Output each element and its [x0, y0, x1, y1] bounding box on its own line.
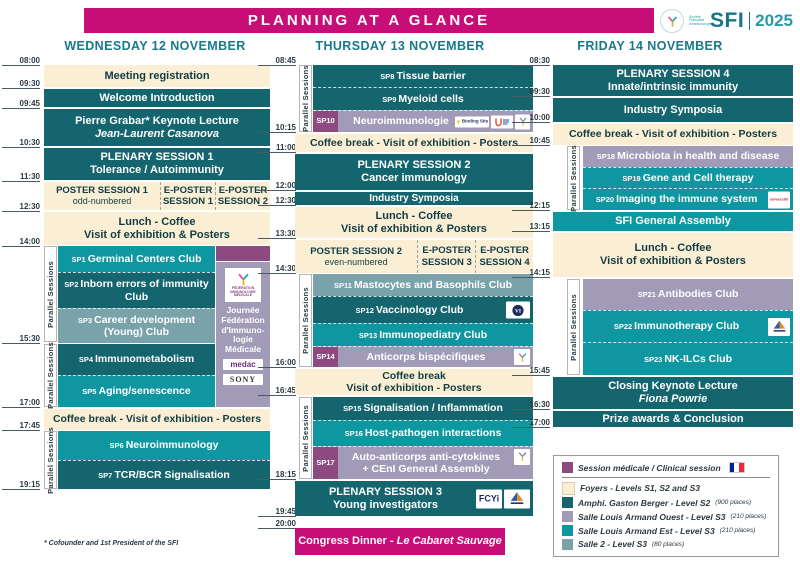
- fim-logo: FÉDÉRATION IMMUNOLOGIE MÉDICALE: [225, 268, 261, 302]
- dinner-venue: Le Cabaret Sauvage: [397, 535, 502, 547]
- session-sfi-general-assembly: SFI General Assembly: [553, 212, 793, 231]
- legend-est: Salle Louis Armand Est - Level S3 (210 p…: [562, 525, 770, 536]
- session-sp9: SP9Myeloid cells: [313, 87, 533, 110]
- session-sp3: SP3Career development (Young) Club: [58, 308, 215, 343]
- keynote-speaker: Jean-Laurent Casanova: [47, 128, 267, 141]
- legend-ouest: Salle Louis Armand Ouest - Level S3 (210…: [562, 511, 770, 522]
- time-label: 11:00: [258, 143, 296, 153]
- amphi-swatch: [562, 497, 573, 508]
- session-keynote-lecture: Pierre Grabar* Keynote Lecture Jean-Laur…: [44, 109, 270, 146]
- time-label: 17:00: [512, 418, 550, 428]
- session-sp17: SP17 Auto-anticorps anti-cytokines + CEn…: [313, 446, 533, 479]
- session-sp13: SP13Immunopediatry Club: [313, 323, 533, 346]
- planning-page: PLANNING AT A GLANCE Société Française d…: [0, 0, 800, 566]
- session-coffee-fri-am: Coffee break - Visit of exhibition - Pos…: [553, 124, 793, 145]
- time-label: 19:15: [2, 480, 40, 490]
- e-poster-session-3: E-POSTER SESSION 3: [417, 240, 475, 273]
- triangle-partner-logo: [768, 318, 790, 336]
- time-label: 15:30: [2, 334, 40, 344]
- fim-caption: Journée Fédération d'Immuno­logie Médica…: [216, 306, 270, 355]
- time-label: 11:30: [2, 172, 40, 182]
- time-label: 14:00: [2, 237, 40, 247]
- time-label: 14:30: [258, 264, 296, 274]
- legend-salle2: Salle 2 - Level S3 (80 places): [562, 539, 770, 550]
- fim-mini-logo: [514, 449, 530, 465]
- sfi-year: 2025: [755, 11, 793, 31]
- session-plenary-2: PLENARY SESSION 2 Cancer immunology: [295, 154, 533, 190]
- session-sp1: SP1Germinal Centers Club: [58, 246, 215, 272]
- session-coffee-thu-am: Coffee break - Visit of exhibition - Pos…: [295, 134, 533, 152]
- parallel-sessions-tab: Parallel Sessions: [567, 146, 580, 210]
- time-label: 08:00: [2, 56, 40, 66]
- french-flag-icon: [729, 462, 745, 473]
- time-label: 18:15: [258, 470, 296, 480]
- session-sp5: SP5Aging/senescence: [58, 375, 215, 407]
- session-sp18: SP18Microbiota in health and disease: [583, 146, 793, 167]
- poster-session-2: POSTER SESSION 2 even-numbered: [295, 240, 417, 273]
- est-swatch: [562, 525, 573, 536]
- time-label: 16:00: [258, 358, 296, 368]
- time-label: 10:45: [512, 136, 550, 146]
- page-title: PLANNING AT A GLANCE: [248, 12, 490, 29]
- parallel-sessions-tab: Parallel Sessions: [567, 279, 580, 375]
- session-sp16: SP16Host-pathogen interactions: [313, 420, 533, 446]
- congress-dinner: Congress Dinner - Le Cabaret Sauvage: [295, 528, 505, 555]
- time-label: 09:30: [512, 87, 550, 97]
- fim-mini-logo: [514, 349, 530, 365]
- clinical-swatch: [562, 462, 573, 473]
- parallel-sessions-tab: Parallel Sessions: [299, 397, 312, 479]
- page-title-banner: PLANNING AT A GLANCE: [84, 8, 654, 33]
- session-sp20: SP20Imaging the immune system université: [583, 188, 793, 210]
- session-welcome-introduction: Welcome Introduction: [44, 89, 270, 107]
- session-sp15: SP15Signalisation / Inflammation: [313, 397, 533, 420]
- vaccinology-club-logo: VI: [506, 302, 530, 319]
- session-plenary-1: PLENARY SESSION 1 Tolerance / Autoimmuni…: [44, 148, 270, 180]
- time-label: 17:45: [2, 421, 40, 431]
- legend-divider: [562, 477, 770, 478]
- session-sp12: SP12Vaccinology Club VI: [313, 296, 533, 323]
- session-sp2: SP2Inborn errors of immunity Club: [58, 272, 215, 308]
- salle2-swatch: [562, 539, 573, 550]
- time-label: 12:30: [258, 196, 296, 206]
- clinical-session-strip: [216, 246, 270, 261]
- session-closing-keynote: Closing Keynote Lecture Fiona Powrie: [553, 377, 793, 409]
- e-poster-session-1: E-POSTER SESSION 1: [160, 182, 215, 210]
- triangle-partner-logo: [504, 489, 530, 508]
- poster-session-2-row: POSTER SESSION 2 even-numbered E-POSTER …: [295, 240, 533, 273]
- clinical-sp-tag: SP17: [313, 447, 338, 479]
- time-label: 17:00: [2, 398, 40, 408]
- day-header-thursday: THURSDAY 13 NOVEMBER: [280, 39, 520, 53]
- session-sp8: SP8Tissue barrier: [313, 65, 533, 87]
- time-label: 16:45: [258, 386, 296, 396]
- time-label: 08:45: [258, 56, 296, 66]
- fcyi-logo: FCYi: [476, 489, 502, 508]
- time-label: 12:00: [258, 181, 296, 191]
- time-label: 20:00: [258, 519, 296, 529]
- time-label: 12:30: [2, 202, 40, 212]
- time-label: 15:45: [512, 366, 550, 376]
- session-plenary-4: PLENARY SESSION 4 Innate/intrinsic immun…: [553, 65, 793, 96]
- session-industry-symposia-fri: Industry Symposia: [553, 98, 793, 122]
- room-legend: Session médicale / Clinical session Foye…: [553, 455, 779, 557]
- parallel-sessions-tab: Parallel Sessions: [299, 65, 312, 132]
- sclerose-en-plaques-logo: [491, 115, 513, 128]
- foyers-swatch: [562, 482, 575, 495]
- clinical-sp-tag: SP14: [313, 347, 338, 367]
- parallel-sessions-tab: Parallel Sessions: [44, 344, 57, 407]
- time-label: 09:30: [2, 79, 40, 89]
- legend-foyers: Foyers - Levels S1, S2 and S3: [562, 482, 770, 495]
- time-label: 19:45: [258, 507, 296, 517]
- time-label: 08:30: [512, 56, 550, 66]
- session-prize-awards: Prize awards & Conclusion: [553, 411, 793, 427]
- session-sp6: SP6Neuroimmunology: [58, 431, 270, 460]
- session-sp14: SP14 Anticorps bispécifiques: [313, 346, 533, 367]
- clinical-sp-tag: SP10: [313, 111, 338, 132]
- sfi-org-text: Société Française d'Immunologie: [689, 16, 705, 27]
- time-label: 12:15: [512, 201, 550, 211]
- sfi-logo: Société Française d'Immunologie SFI 2025: [660, 7, 793, 35]
- time-label: 10:00: [512, 113, 550, 123]
- time-label: 10:15: [258, 123, 296, 133]
- time-label: 16:30: [512, 400, 550, 410]
- parallel-sessions-tab: Parallel Sessions: [44, 431, 57, 489]
- sony-logo: SONY: [223, 374, 263, 385]
- legend-amphi: Amphi. Gaston Berger - Level S2 (900 pla…: [562, 497, 770, 508]
- svg-text:VI: VI: [515, 308, 521, 314]
- day-header-friday: FRIDAY 14 NOVEMBER: [530, 39, 770, 53]
- session-sp23: SP23NK-ILCs Club: [583, 342, 793, 375]
- session-lunch-wed: Lunch - Coffee Visit of exhibition & Pos…: [44, 212, 270, 245]
- time-label: 14:15: [512, 268, 550, 278]
- universite-logo: université: [768, 191, 790, 208]
- time-label: 09:45: [2, 99, 40, 109]
- legend-clinical: Session médicale / Clinical session: [562, 462, 770, 473]
- session-lunch-thu: Lunch - Coffee Visit of exhibition & Pos…: [295, 207, 533, 238]
- session-lunch-fri: Lunch - Coffee Visit of exhibition & Pos…: [553, 233, 793, 277]
- poster-session-1-row: POSTER SESSION 1 odd-numbered E-POSTER S…: [44, 182, 270, 210]
- session-meeting-registration: Meeting registration: [44, 65, 270, 87]
- time-label: 10:30: [2, 138, 40, 148]
- binding-site-logo: Binding Site: [455, 116, 489, 127]
- time-label: 13:30: [258, 229, 296, 239]
- footnote: * Cofounder and 1st President of the SFI: [44, 540, 178, 547]
- session-sp22: SP22Immunotherapy Club: [583, 310, 793, 342]
- parallel-sessions-tab: Parallel Sessions: [299, 274, 312, 367]
- time-label: 13:15: [512, 222, 550, 232]
- closing-speaker: Fiona Powrie: [556, 393, 790, 406]
- session-sp7: SP7TCR/BCR Signalisation: [58, 460, 270, 489]
- poster-session-1: POSTER SESSION 1 odd-numbered: [44, 182, 160, 210]
- sfi-logo-divider: [749, 12, 750, 30]
- session-sp10: SP10 Neuroimmunologie Binding Site: [313, 110, 533, 132]
- session-coffee-wed: Coffee break - Visit of exhibition - Pos…: [44, 409, 270, 430]
- sfi-antibody-icon: [660, 9, 684, 33]
- sfi-wordmark: SFI: [710, 9, 744, 33]
- session-sp21: SP21Antibodies Club: [583, 279, 793, 310]
- session-industry-symposia-thu: Industry Symposia: [295, 192, 533, 205]
- medac-logo: medac: [223, 359, 263, 370]
- session-sp4: SP4Immunometabolism: [58, 344, 215, 375]
- ouest-swatch: [562, 511, 573, 522]
- session-sp19: SP19Gene and Cell therapy: [583, 167, 793, 188]
- session-sp11: SP11Mastocytes and Basophils Club: [313, 274, 533, 296]
- day-header-wednesday: WEDNESDAY 12 NOVEMBER: [30, 39, 280, 53]
- session-coffee-thu-pm: Coffee break Visit of exhibition - Poste…: [295, 369, 533, 395]
- session-plenary-3: PLENARY SESSION 3 Young investigators FC…: [295, 481, 533, 516]
- parallel-sessions-tab: Parallel Sessions: [44, 246, 57, 342]
